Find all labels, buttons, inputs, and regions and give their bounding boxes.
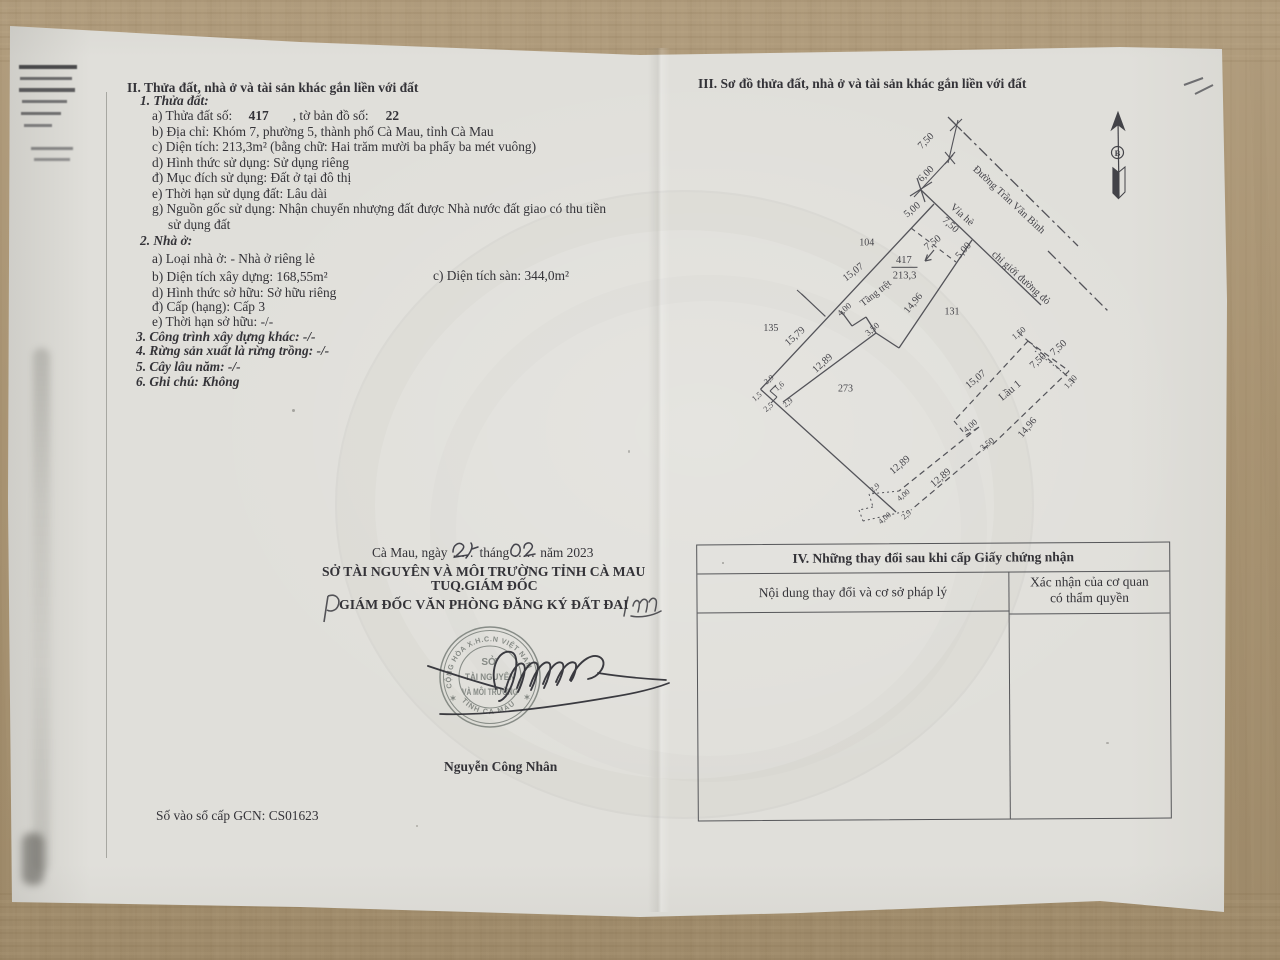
- svg-text:2,5: 2,5: [762, 400, 775, 413]
- svg-text:1,5: 1,5: [750, 390, 763, 403]
- svg-text:Đường Trần Văn Bình: Đường Trần Văn Bình: [971, 164, 1048, 237]
- svg-text:417: 417: [896, 255, 912, 266]
- svg-text:1,50: 1,50: [1010, 324, 1028, 341]
- svg-text:1,6: 1,6: [772, 380, 785, 393]
- svg-text:4,00: 4,00: [961, 417, 980, 435]
- svg-text:131: 131: [945, 307, 960, 318]
- svg-text:104: 104: [859, 237, 874, 248]
- svg-text:2,9: 2,9: [900, 508, 913, 521]
- svg-text:7,50: 7,50: [1048, 338, 1069, 358]
- svg-text:14,96: 14,96: [1016, 415, 1039, 440]
- svg-text:12,89: 12,89: [888, 454, 913, 477]
- svg-text:213,3: 213,3: [893, 270, 917, 281]
- svg-text:14,96: 14,96: [902, 291, 925, 316]
- svg-text:1,50: 1,50: [1062, 373, 1079, 391]
- svg-text:2,9: 2,9: [781, 396, 794, 409]
- svg-text:✶: ✶: [524, 693, 531, 702]
- svg-text:5,00: 5,00: [954, 240, 974, 261]
- svg-text:7,50: 7,50: [916, 131, 937, 152]
- svg-text:15,79: 15,79: [783, 325, 808, 349]
- svg-text:B: B: [1115, 148, 1121, 158]
- svg-text:273: 273: [838, 384, 853, 395]
- svg-text:6,00: 6,00: [916, 164, 937, 185]
- svg-text:Tầng trệt: Tầng trệt: [858, 278, 894, 309]
- svg-text:4,00: 4,00: [835, 300, 854, 318]
- svg-text:4,00: 4,00: [895, 487, 912, 503]
- svg-text:3,50: 3,50: [978, 435, 997, 453]
- svg-text:Lầu 1: Lầu 1: [997, 378, 1024, 403]
- svg-text:2,9: 2,9: [868, 481, 881, 494]
- svg-text:135: 135: [763, 323, 778, 334]
- svg-text:4,00: 4,00: [876, 510, 893, 526]
- svg-text:chỉ giới đường đỏ: chỉ giới đường đỏ: [989, 249, 1052, 307]
- svg-text:✶: ✶: [450, 694, 457, 703]
- svg-text:5,00: 5,00: [902, 200, 923, 220]
